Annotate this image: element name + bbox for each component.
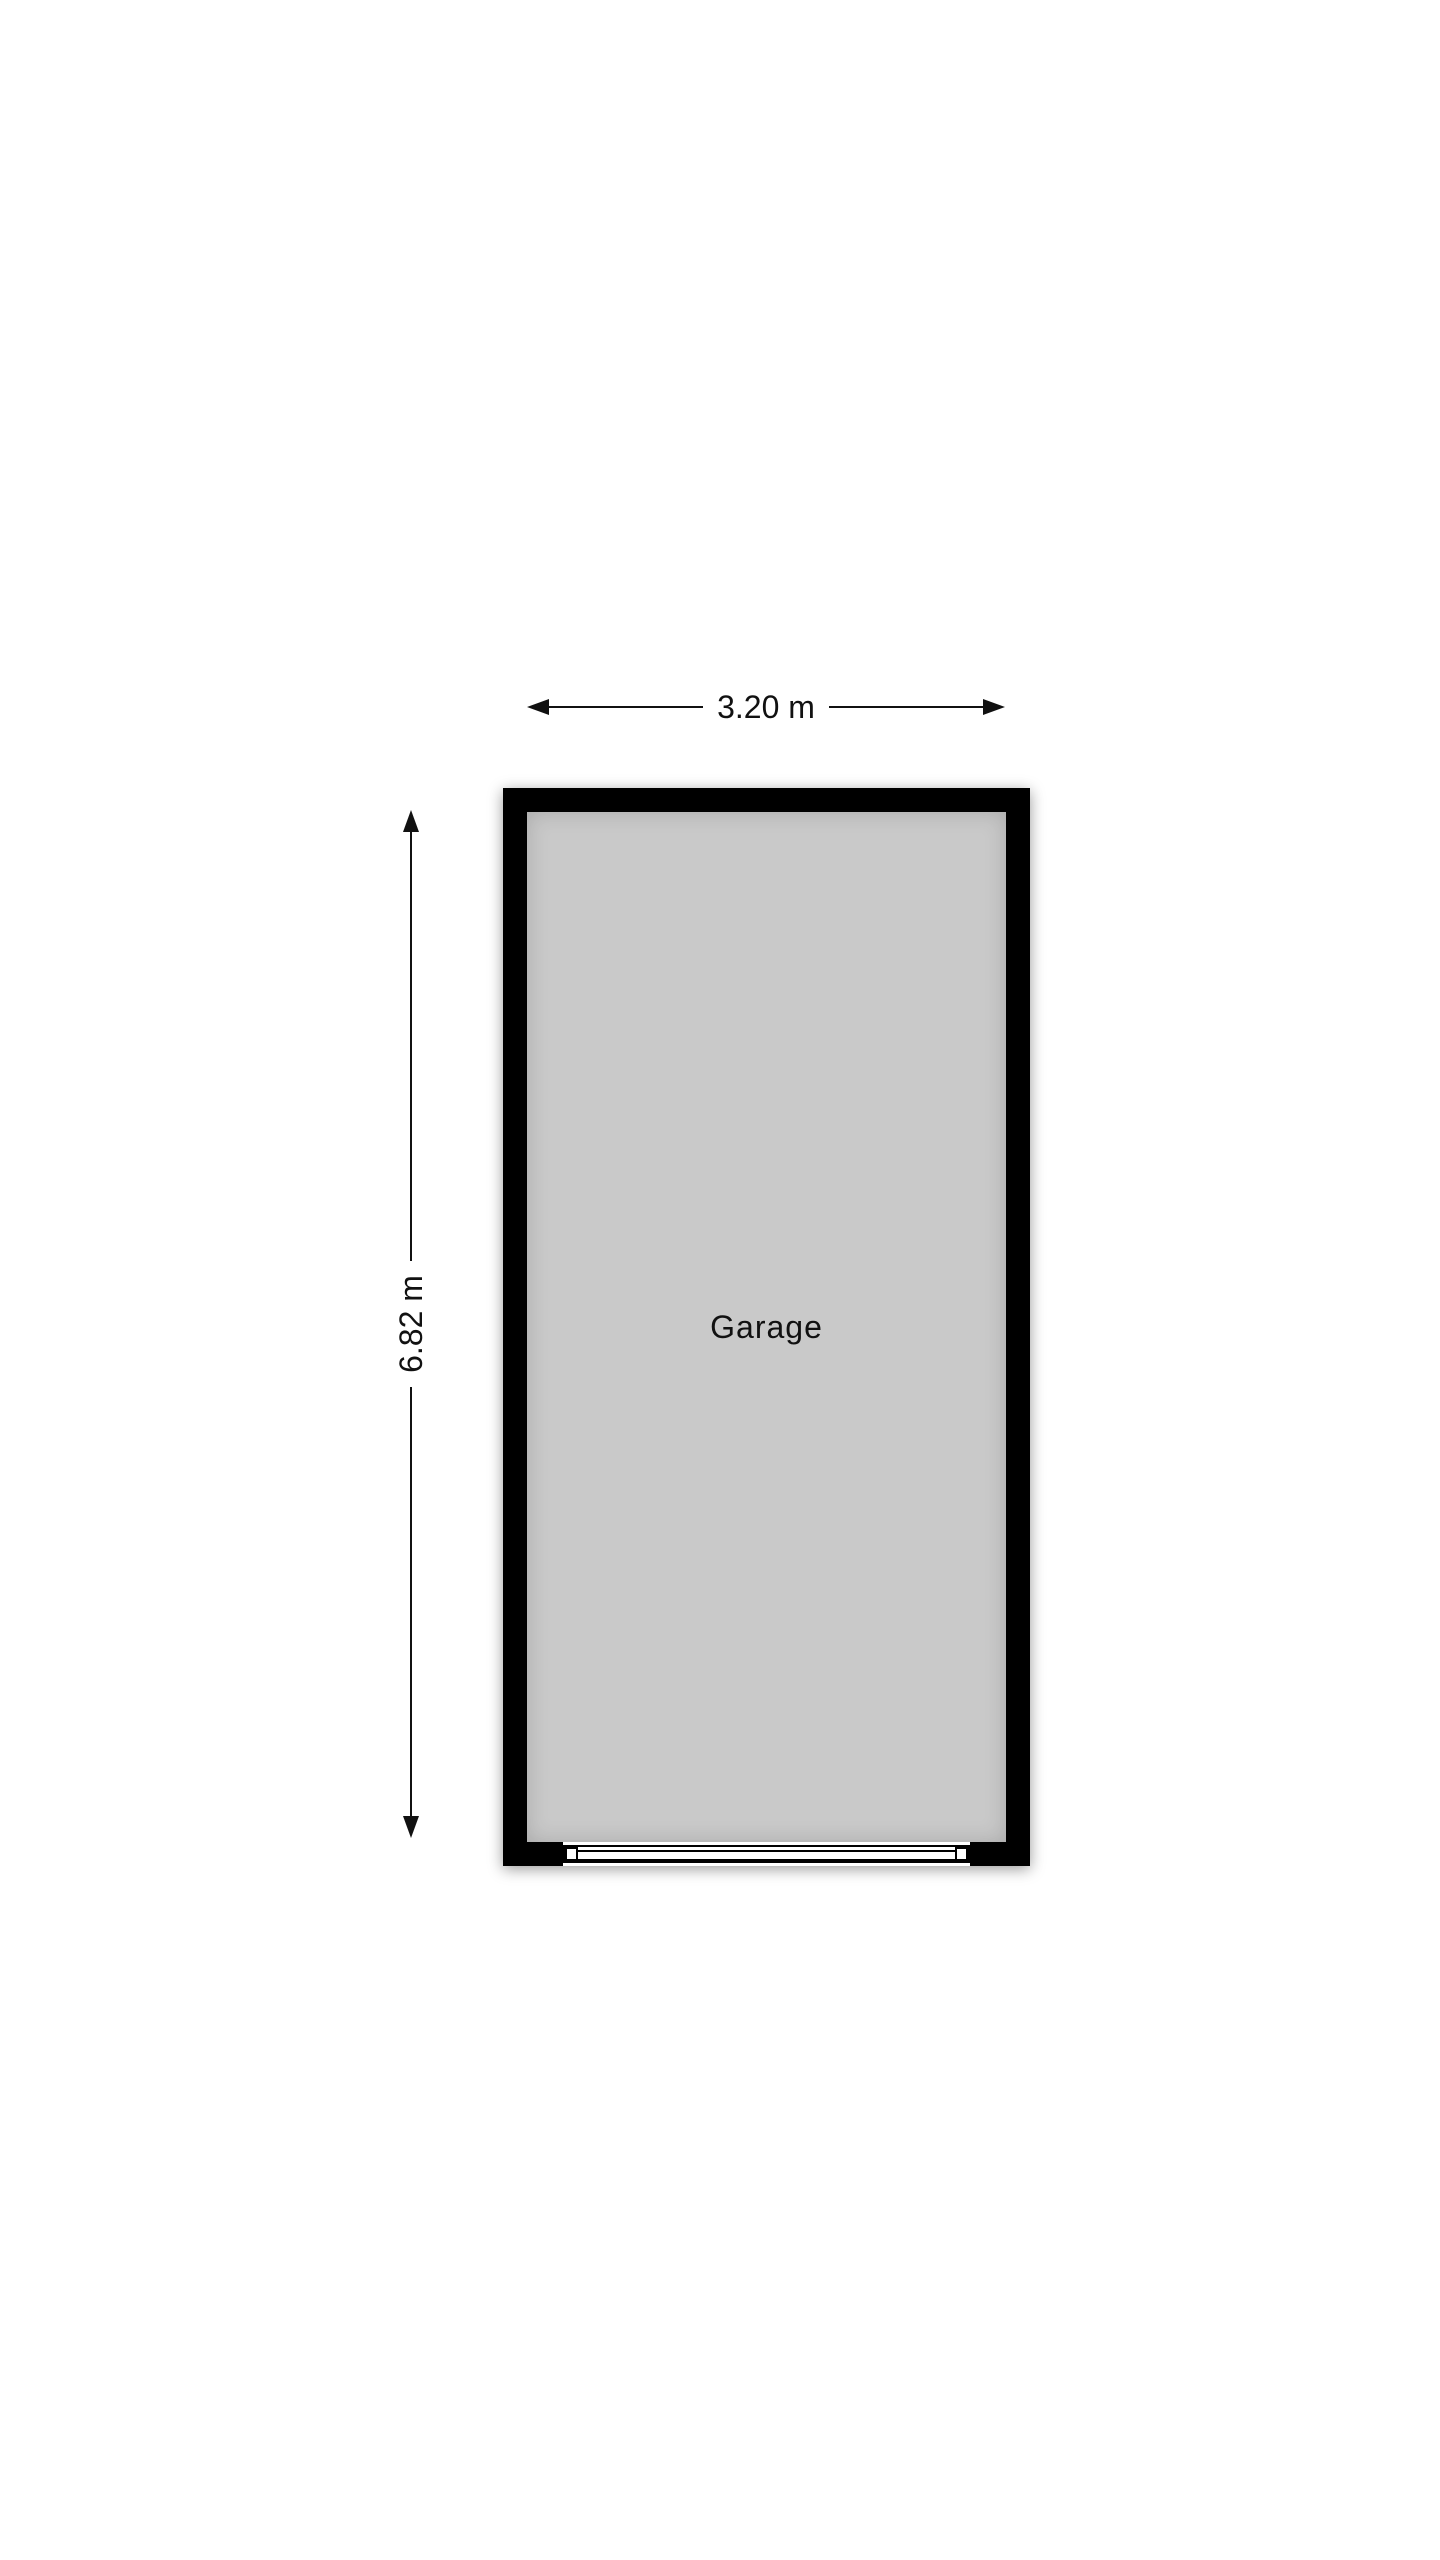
arrow-right-icon: [983, 699, 1005, 715]
dimension-line: [549, 706, 703, 708]
floorplan-canvas: 3.20 m 6.82 m Garage: [0, 0, 1440, 2560]
arrow-up-icon: [403, 810, 419, 832]
garage-door-end-cap-left: [565, 1847, 578, 1861]
garage-door-end-cap-right: [955, 1847, 968, 1861]
arrow-down-icon: [403, 1816, 419, 1838]
dimension-line: [410, 1387, 412, 1816]
width-dimension-label: 3.20 m: [703, 687, 829, 727]
dimension-line: [410, 832, 412, 1261]
room-garage: Garage: [527, 812, 1006, 1842]
garage-door: [563, 1842, 970, 1866]
dimension-line: [829, 706, 983, 708]
garage-building-walls: Garage: [503, 788, 1030, 1866]
height-dimension-label: 6.82 m: [391, 1261, 431, 1387]
garage-door-rail: [575, 1850, 958, 1861]
height-dimension: 6.82 m: [391, 810, 431, 1838]
width-dimension: 3.20 m: [527, 687, 1005, 727]
arrow-left-icon: [527, 699, 549, 715]
room-label: Garage: [710, 1309, 823, 1346]
